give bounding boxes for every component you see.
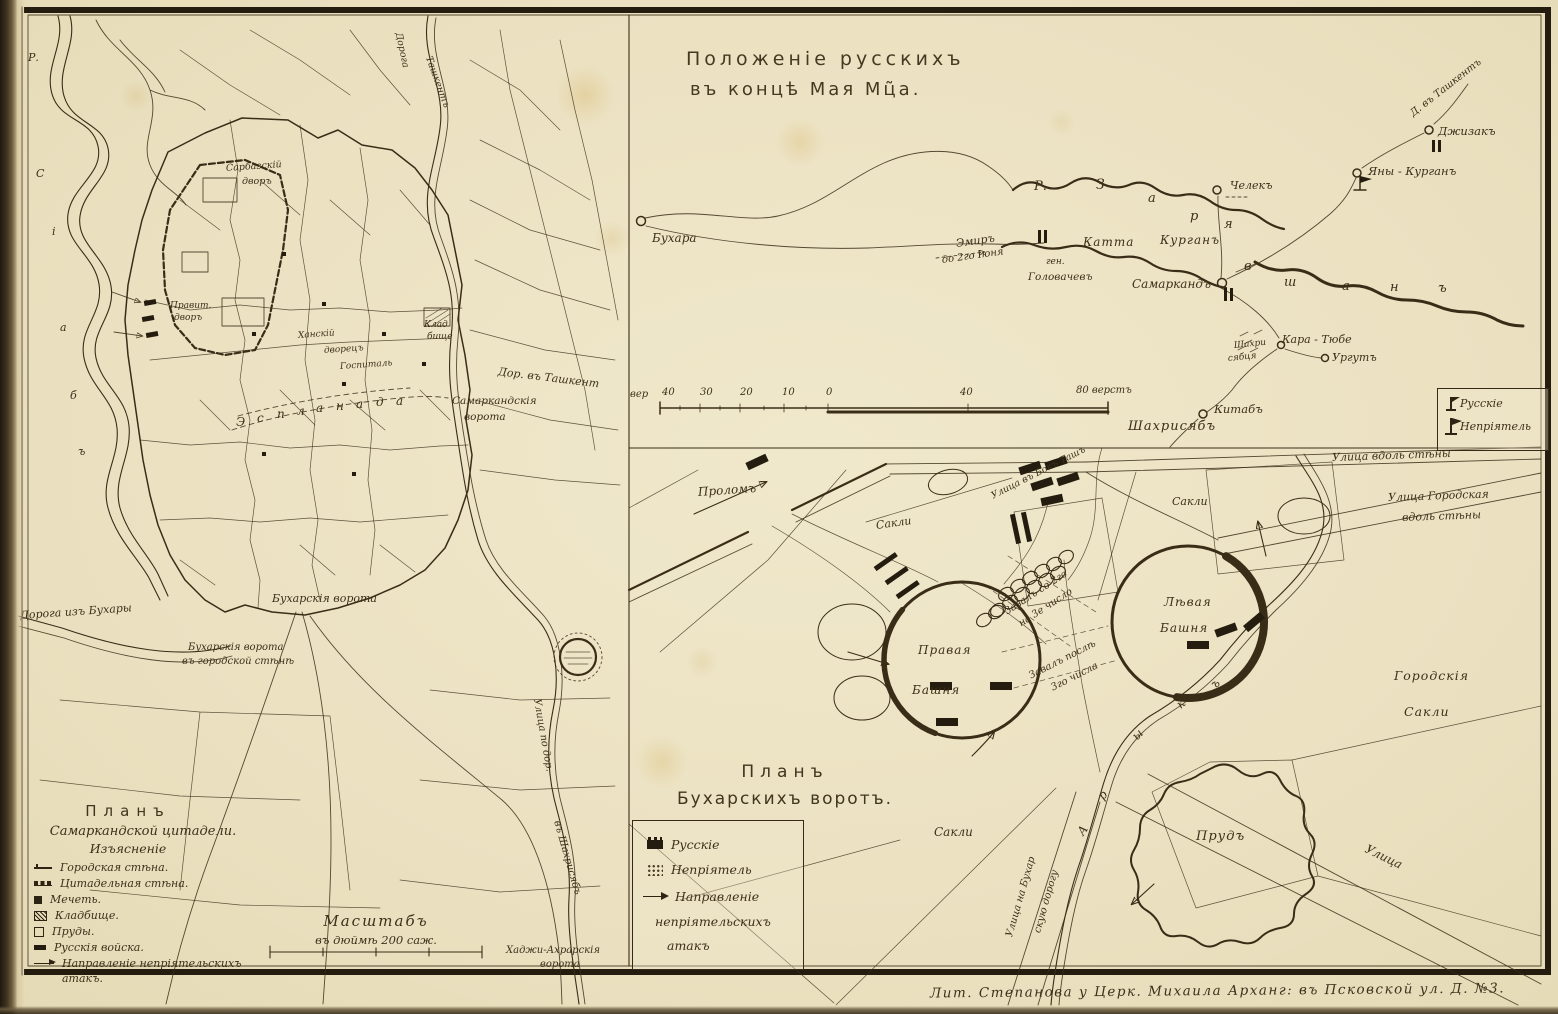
map-label: Улица Городская	[1388, 488, 1489, 503]
lithograph-map-sheet: ДорогаТашкентъСарбазскійдворъПравит.двор…	[0, 0, 1558, 1014]
map-label: ы	[1130, 727, 1145, 742]
cemetery-icon	[34, 911, 47, 921]
legend-label: Направленіе	[675, 889, 759, 904]
map-label: Городскія	[1394, 670, 1469, 683]
legend-label: Мечеть.	[50, 893, 101, 906]
map-label: Улица въ Бокъ Ташъ	[990, 445, 1087, 501]
map-label: Улица	[1363, 843, 1404, 871]
attack-arrow-icon	[643, 896, 667, 897]
enemy-flag-icon	[1450, 418, 1452, 434]
city-legend-subtitle: Самаркандской цитадели.	[28, 824, 258, 839]
legend-label: Непріятель	[671, 862, 752, 877]
russian-troops-icon	[34, 945, 46, 950]
map-label: Улица вдоль стѣны	[1332, 448, 1451, 463]
map-label: Башня	[1160, 622, 1208, 634]
city-legend-heading: Изъясненіе	[28, 841, 228, 856]
gate-plan-title: Планъ Бухарскихъ воротъ.	[640, 762, 930, 809]
enemy-dots-icon	[647, 864, 663, 876]
map-label: Проломъ	[698, 482, 757, 498]
map-label: Башня	[912, 684, 960, 696]
map-label: скую дорогу	[1033, 869, 1061, 934]
city-scale: Масштабъ въ дюймѣ 200 саж.	[268, 912, 484, 947]
legend-label: Непріятель	[1460, 420, 1531, 433]
legend-label: атакъ.	[62, 972, 103, 985]
overview-title-line1: Положеніе русскихъ	[686, 48, 965, 70]
map-label: Сакли	[875, 515, 912, 531]
legend-label: Русскіе	[1460, 397, 1503, 410]
mosque-icon	[34, 896, 42, 904]
page-torn-edge	[17, 0, 25, 1014]
russian-flag-icon	[1450, 397, 1452, 410]
map-label: А	[1075, 823, 1090, 837]
legend-label: атакъ	[667, 938, 710, 953]
gate-title-line1: Планъ	[640, 762, 930, 782]
map-label: Лѣвая	[1164, 596, 1212, 608]
map-label: Сакли	[934, 826, 973, 838]
map-label: ъ	[1209, 676, 1222, 690]
legend-label: Направленіе непріятельскихъ	[62, 957, 242, 970]
overview-map-title: Положеніе русскихъ въ концѣ Мая Мц̃а.	[686, 48, 965, 100]
map-label: Сакли	[1172, 496, 1208, 507]
map-label: р	[1095, 788, 1109, 802]
map-label: вдоль стѣны	[1402, 509, 1481, 523]
city-legend-title: Планъ	[28, 802, 228, 820]
russian-block-icon	[647, 840, 663, 849]
map-label: к	[1174, 697, 1187, 711]
gate-title-line2: Бухарскихъ воротъ.	[640, 789, 930, 809]
map-label: Правая	[918, 644, 971, 656]
attack-direction-icon	[34, 963, 54, 964]
gate-legend-box: Русскіе Непріятель Направленіе непріятел…	[632, 820, 804, 970]
legend-label: Кладбище.	[55, 909, 119, 922]
legend-label: Русскія войска.	[54, 941, 144, 954]
legend-label: Цитадельная стѣна.	[60, 877, 188, 890]
page-bottom-edge	[0, 1006, 1558, 1014]
city-legend: Планъ Самаркандской цитадели. Изъясненіе…	[28, 802, 276, 985]
city-scale-subtitle: въ дюймѣ 200 саж.	[268, 933, 484, 947]
citadel-wall-icon	[34, 881, 52, 886]
legend-label: Городская стѣна.	[60, 861, 168, 874]
city-scale-title: Масштабъ	[268, 912, 484, 930]
legend-label: Пруды.	[52, 925, 94, 938]
legend-label: непріятельскихъ	[655, 914, 771, 929]
book-gutter	[0, 0, 17, 1014]
pond-icon	[34, 927, 44, 937]
overview-title-line2: въ концѣ Мая Мц̃а.	[690, 79, 965, 100]
overview-legend-box: Русскіе Непріятель	[1437, 388, 1549, 451]
legend-label: Русскіе	[671, 837, 720, 852]
map-label: Сакли	[1404, 706, 1450, 719]
city-wall-icon	[34, 867, 52, 869]
map-label: Прудъ	[1196, 830, 1245, 843]
